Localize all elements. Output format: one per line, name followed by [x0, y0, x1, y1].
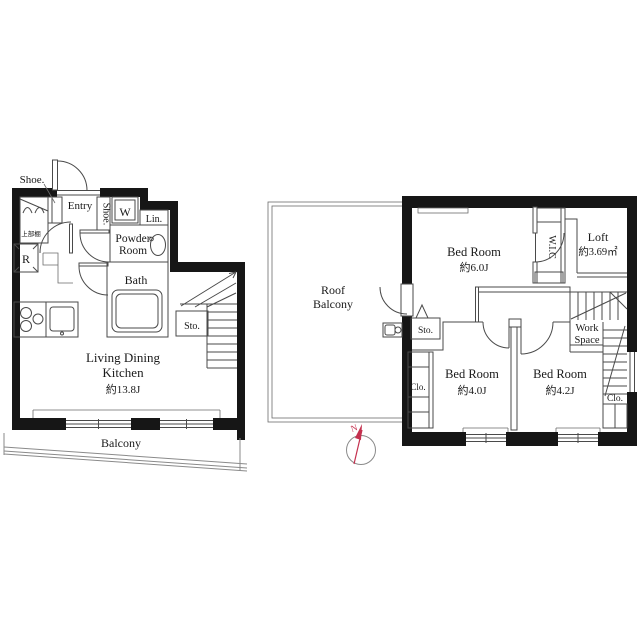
floor2-window-left — [466, 433, 506, 443]
floor1-walls — [12, 188, 245, 440]
washer-box: W — [112, 197, 138, 223]
powder-room: Powder Room — [110, 225, 168, 262]
work-space: Work Space — [570, 323, 603, 352]
floorplan-svg: 上部棚 Shoe. Entry Shoe. W Lin. — [0, 0, 640, 640]
closet-left-label: Clo. — [410, 382, 425, 392]
floor1-balcony: Balcony — [4, 433, 247, 471]
staircase-2f-lower — [603, 322, 627, 404]
ldk-label-1: Living Dining — [86, 350, 161, 365]
loft-label: Loft — [588, 230, 609, 244]
bed3-window-sill — [556, 428, 600, 432]
shoe-top-label: Shoe. — [20, 174, 45, 186]
bed1-label: Bed Room — [447, 245, 501, 259]
washer-label: W — [119, 205, 131, 219]
wic-label: W.I.C — [546, 235, 557, 259]
bathroom: Bath — [107, 262, 168, 337]
fridge-label: R — [22, 252, 30, 266]
bed2-area-label: 約4.0J — [457, 383, 487, 397]
ldk-label-2: Kitchen — [102, 365, 144, 380]
floor1-window-right — [160, 419, 213, 429]
bed2-door — [483, 322, 509, 348]
roof-balcony: Roof Balcony — [268, 202, 406, 422]
storage-2f-label: Sto. — [418, 326, 433, 336]
bedroom-divider-wall — [511, 327, 517, 430]
floor2-side-window — [630, 352, 635, 392]
hall-ldk-door — [40, 222, 73, 283]
floorplan-canvas: 上部棚 Shoe. Entry Shoe. W Lin. — [0, 0, 640, 640]
closet-right-label: Clo. — [607, 394, 623, 404]
entry-door — [53, 160, 101, 195]
floor2-window-right — [558, 433, 598, 443]
storage-2f: Sto. — [411, 305, 440, 339]
linen-label: Lin. — [146, 214, 162, 225]
ldk-area-label: 約13.8J — [106, 382, 141, 396]
closet-right: Clo. — [603, 394, 627, 428]
bath-label: Bath — [125, 273, 148, 287]
powder-label-1: Powder — [115, 233, 150, 245]
staircase-1f: Sto. — [176, 272, 237, 368]
bed1-area-label: 約6.0J — [459, 260, 489, 274]
bed1-window-sill — [418, 208, 468, 213]
floor1-window-sill — [33, 410, 220, 418]
floor1-window-left — [66, 419, 131, 429]
roof-balcony-door — [380, 284, 413, 316]
floor2-plan: Roof Balcony — [268, 196, 637, 446]
balcony-label: Balcony — [101, 436, 141, 450]
entry-closet: 上部棚 — [20, 197, 48, 243]
powder-room-door — [80, 230, 109, 262]
bed3-door — [521, 322, 553, 354]
loft-area-label: 約3.69㎡ — [578, 245, 618, 258]
wic-closet: W.I.C — [533, 207, 565, 283]
hall-south-wall — [412, 319, 570, 350]
kitchen-counter — [14, 302, 78, 337]
roof-balcony-label-1: Roof — [321, 283, 345, 297]
work-space-label-1: Work — [575, 323, 599, 334]
bed3-label: Bed Room — [533, 367, 587, 381]
bed3-area-label: 約4.2J — [545, 383, 575, 397]
linen-shelf: Lin. — [140, 210, 168, 225]
shoe-side-label: Shoe. — [101, 203, 112, 226]
powder-label-2: Room — [119, 245, 147, 257]
compass-north-label: N — [349, 422, 359, 434]
loft-area: Loft 約3.69㎡ — [565, 208, 627, 277]
storage-1f-label: Sto. — [184, 321, 200, 332]
bed2-label: Bed Room — [445, 367, 499, 381]
work-space-label-2: Space — [574, 335, 599, 346]
entry-label: Entry — [68, 200, 93, 212]
floor1-plan: 上部棚 Shoe. Entry Shoe. W Lin. — [12, 160, 245, 440]
bed1-south-wall — [477, 287, 570, 292]
bed2-window-sill — [463, 428, 508, 432]
balcony-fixture — [383, 323, 402, 337]
corridor-door — [79, 263, 108, 295]
compass-icon: N — [347, 422, 376, 464]
upper-shelf-label: 上部棚 — [21, 229, 41, 238]
shoe-side-cabinet: Shoe. — [97, 197, 112, 230]
roof-balcony-label-2: Balcony — [313, 297, 353, 311]
hall-west-wall — [476, 287, 479, 322]
